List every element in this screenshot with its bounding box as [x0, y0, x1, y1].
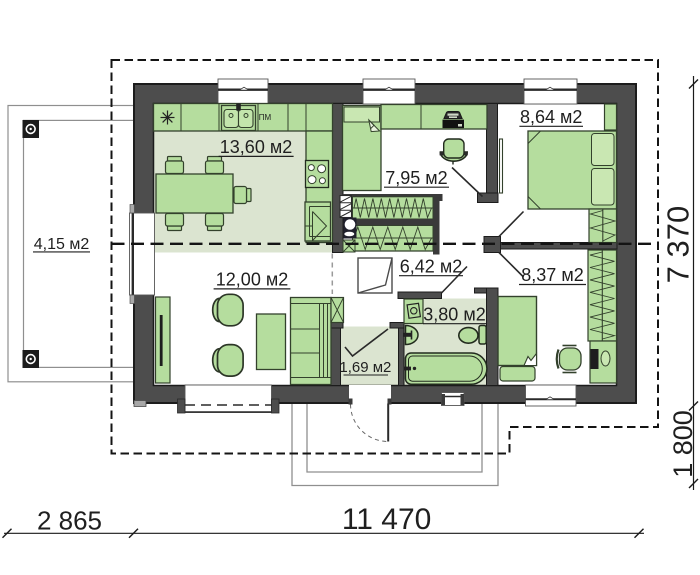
svg-text:7,95 м2: 7,95 м2: [385, 168, 447, 188]
svg-text:8,37 м2: 8,37 м2: [521, 265, 583, 285]
svg-text:2 865: 2 865: [37, 505, 102, 535]
svg-text:4,15 м2: 4,15 м2: [34, 236, 90, 253]
svg-text:1,69 м2: 1,69 м2: [339, 359, 391, 376]
svg-text:13,60 м2: 13,60 м2: [220, 137, 292, 157]
svg-text:8,64 м2: 8,64 м2: [520, 107, 582, 127]
svg-text:ПМ: ПМ: [259, 113, 272, 122]
svg-text:11 470: 11 470: [342, 503, 432, 536]
svg-text:3,80 м2: 3,80 м2: [423, 304, 485, 324]
svg-text:12,00 м2: 12,00 м2: [216, 270, 288, 290]
svg-text:6,42 м2: 6,42 м2: [400, 256, 462, 276]
svg-text:1 800: 1 800: [668, 410, 698, 478]
svg-text:7 370: 7 370: [661, 206, 696, 284]
